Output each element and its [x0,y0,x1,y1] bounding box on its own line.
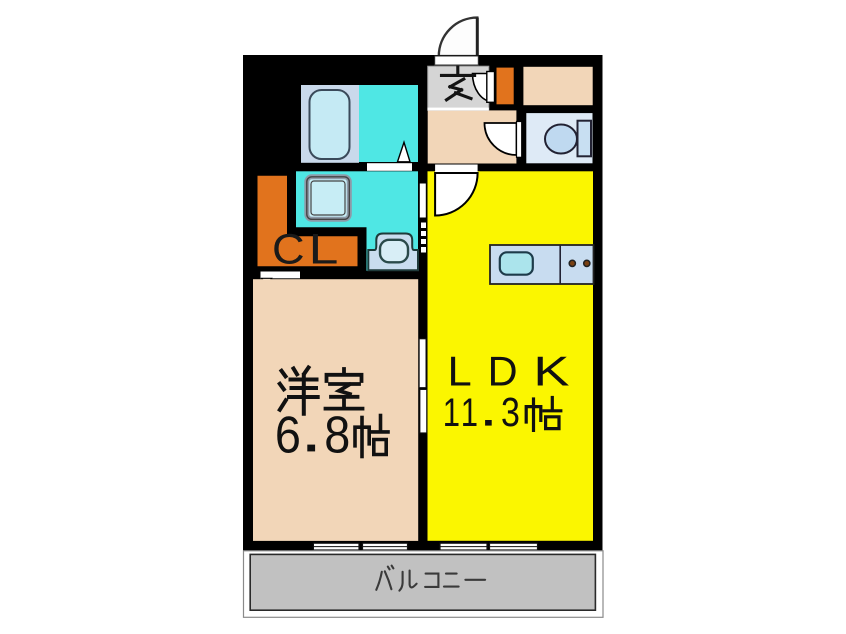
svg-text:8: 8 [324,406,350,464]
svg-text:K: K [533,349,569,395]
svg-text:1: 1 [461,390,478,435]
svg-text:C: C [272,225,305,273]
svg-text:3: 3 [501,389,520,434]
svg-text:D: D [488,347,518,394]
svg-text:6: 6 [275,406,301,464]
svg-text:L: L [448,348,472,395]
svg-text:1: 1 [443,390,460,435]
svg-text:L: L [309,226,339,274]
